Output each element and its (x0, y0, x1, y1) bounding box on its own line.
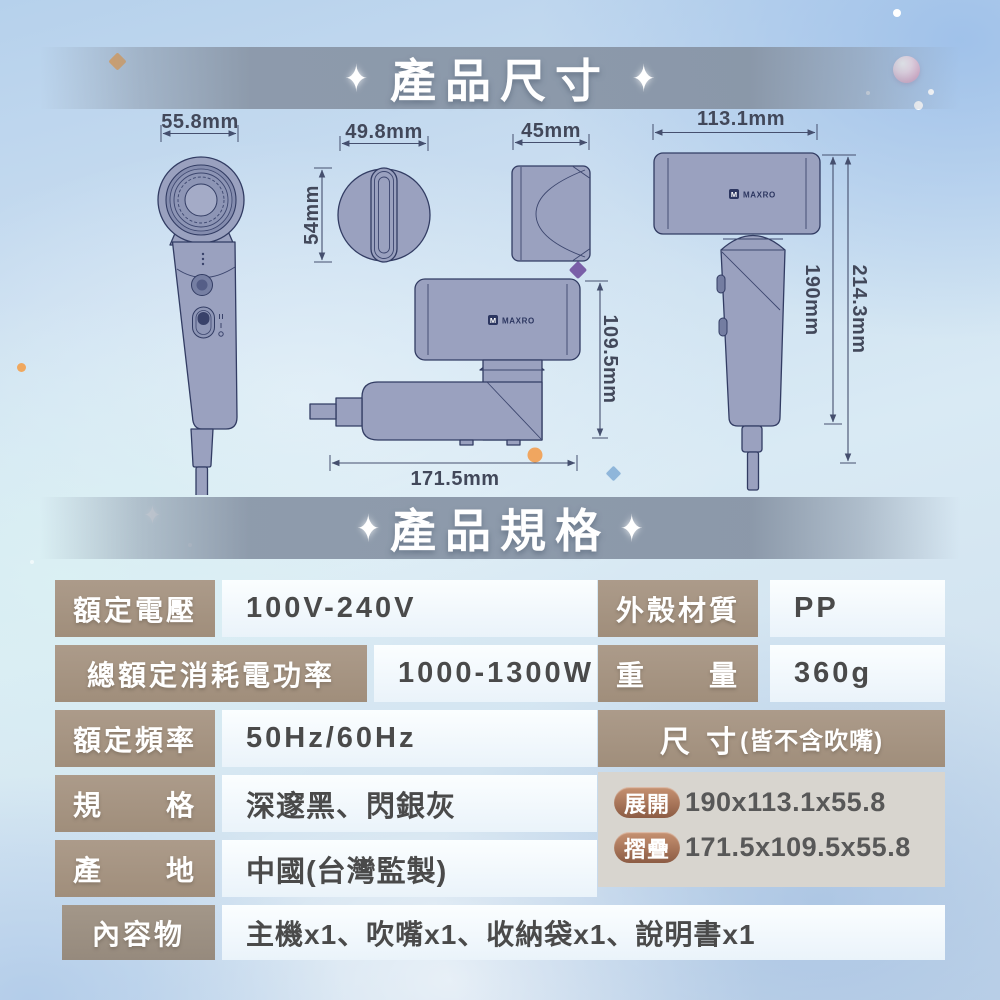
size-row-folded: 摺疊 171.5x109.5x55.8 (614, 832, 911, 863)
spec-label-rated-frequency: 額定頻率 (55, 710, 215, 767)
spec-label-shell-material: 外殼材質 (598, 580, 758, 637)
unfolded-size-value: 190x113.1x55.8 (685, 787, 886, 818)
brand-logo: M MAXRO (488, 315, 535, 326)
dimension-label-folded-height: 109.5mm (599, 314, 621, 403)
dimension-label-nozzle-width: 45mm (521, 120, 581, 142)
sparkle-icon: ✦ (620, 506, 643, 551)
logo-text: MAXRO (502, 317, 535, 326)
spec-value-rated-frequency: 50Hz/60Hz (222, 710, 597, 767)
spec-label-origin: 產 地 (55, 840, 215, 897)
dimension-label-head-depth: 54mm (301, 185, 323, 245)
white-dot-decoration (30, 560, 34, 564)
folded-tag-pill: 摺疊 (614, 832, 680, 863)
unfolded-tag-pill: 展開 (614, 787, 680, 818)
dimension-label-folded-length: 171.5mm (410, 468, 499, 490)
spec-value-color-options: 深邃黑、閃銀灰 (222, 775, 597, 832)
spec-value-origin: 中國(台灣監製) (222, 840, 597, 897)
spec-label-contents: 內容物 (62, 905, 215, 960)
size-header-note: (皆不含吹嘴) (740, 721, 883, 756)
purple-diamond-decoration (569, 261, 587, 279)
brand-logo: M MAXRO (729, 189, 776, 200)
dimension-diagrams: 55.8mm (0, 95, 1000, 495)
blue-diamond-decoration (606, 466, 622, 482)
size-row-unfolded: 展開 190x113.1x55.8 (614, 787, 886, 818)
dimension-label-head-width: 49.8mm (345, 121, 423, 143)
spec-label-rated-voltage: 額定電壓 (55, 580, 215, 637)
sparkle-icon: ✦ (345, 56, 368, 101)
dimension-label-unfolded-total-length: 214.3mm (848, 264, 870, 353)
spec-size-box: 展開 190x113.1x55.8 摺疊 171.5x109.5x55.8 (598, 772, 945, 887)
dimension-label-unfolded-body-length: 190mm (801, 264, 823, 335)
specs-section-title: 產品規格 (390, 495, 610, 561)
logo-text: MAXRO (743, 191, 776, 200)
power-button (192, 275, 213, 296)
slide-switch (193, 307, 215, 338)
sparkle-icon: ✦ (357, 506, 380, 551)
size-header-title: 尺 寸 (660, 717, 740, 761)
spec-value-weight: 360g (770, 645, 945, 702)
spec-value-rated-voltage: 100V-240V (222, 580, 597, 637)
dimension-label-front-width: 55.8mm (161, 111, 239, 133)
spec-label-color-options: 規 格 (55, 775, 215, 832)
sparkle-icon: ✦ (632, 56, 655, 101)
spec-label-weight: 重 量 (598, 645, 758, 702)
product-infographic: ✦ ✦ 產品尺寸 ✦ 55.8mm (0, 0, 1000, 1000)
spec-value-shell-material: PP (770, 580, 945, 637)
spec-value-rated-power: 1000-1300W (374, 645, 597, 702)
folded-view-drawing: M MAXRO 109.5mm 171.5mm (310, 279, 621, 490)
nozzle-view-drawing: 45mm (512, 120, 590, 279)
top-view-drawing: 49.8mm 54mm (301, 121, 430, 262)
orange-dot-decoration (528, 448, 543, 463)
spec-value-contents: 主機x1、吹嘴x1、收納袋x1、說明書x1 (222, 905, 945, 960)
dimension-label-unfolded-width: 113.1mm (697, 108, 785, 130)
unfolded-view-drawing: 113.1mm M MAXRO 190mm 214.3mm (653, 108, 870, 490)
front-view-drawing: 55.8mm (158, 111, 244, 495)
white-dot-decoration (893, 9, 901, 17)
logo-mark: M (490, 316, 496, 325)
specs-title-band: ✦ 產品規格 ✦ (0, 497, 1000, 559)
logo-mark: M (731, 190, 737, 199)
spec-size-header: 尺 寸 (皆不含吹嘴) (598, 710, 945, 767)
spec-label-rated-power: 總額定消耗電功率 (55, 645, 367, 702)
folded-size-value: 171.5x109.5x55.8 (685, 832, 911, 863)
